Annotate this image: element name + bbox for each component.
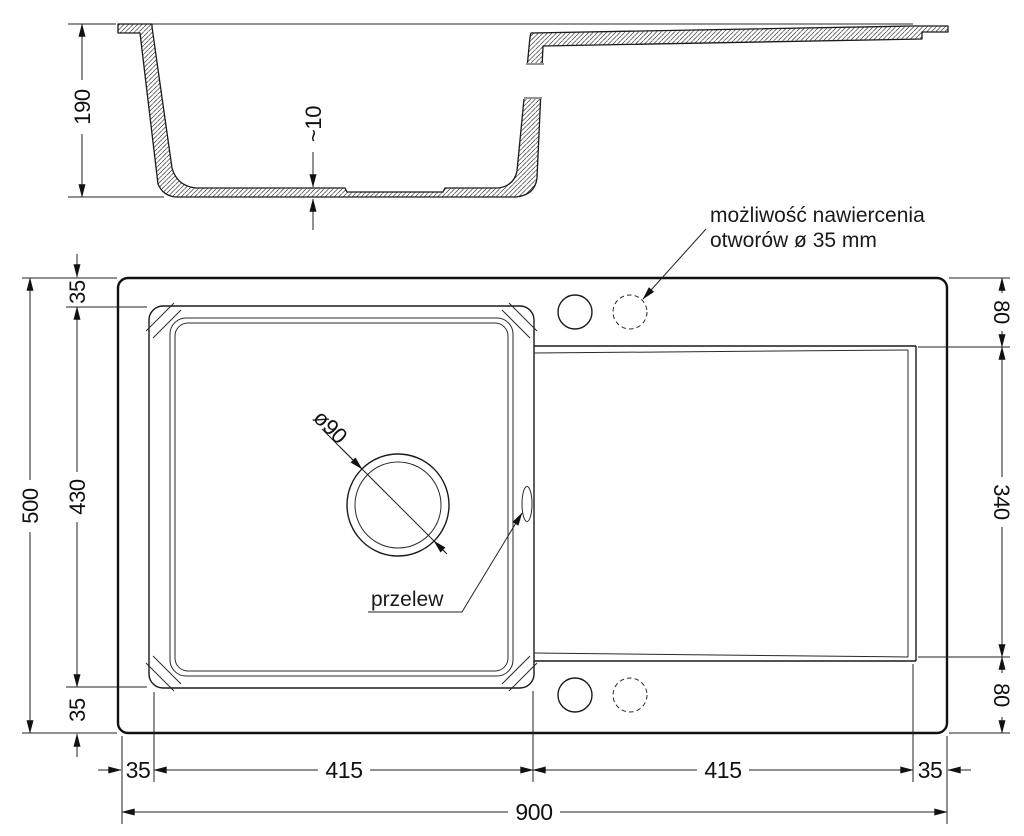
dim-overall-height-label: 500 <box>18 488 43 524</box>
faucet-hole-bottom <box>558 678 592 712</box>
bowl-rim-outer <box>149 306 534 688</box>
dim-drainboard-415-label: 415 <box>704 757 741 783</box>
dim-overall-width-label: 900 <box>515 799 552 825</box>
dim-right-80-top-label: 80 <box>989 300 1014 324</box>
side-section-view: 190 ~10 <box>68 24 948 230</box>
dim-bowl-415-label: 415 <box>325 757 362 783</box>
dim-overall-height: 500 <box>18 278 43 733</box>
drill-note-callout: możliwość nawiercenia otworów ø 35 mm <box>643 204 925 299</box>
bowl-rim-inner <box>170 318 513 676</box>
drill-note-line2: otworów ø 35 mm <box>710 229 877 252</box>
dim-depth-label: 190 <box>70 89 95 125</box>
dim-bowl-length-label: 430 <box>65 479 90 515</box>
bowl-corner-chamfers <box>146 303 537 691</box>
technical-drawing-page: 190 ~10 <box>0 0 1024 836</box>
faucet-hole-top <box>558 295 592 329</box>
dim-bottom-35-left-label: 35 <box>126 757 151 783</box>
dim-overall-width: 900 <box>122 799 947 825</box>
section-body-hatched <box>118 24 948 197</box>
dim-base-thickness: ~10 <box>301 106 326 230</box>
dim-bottom-35-right-label: 35 <box>918 757 943 783</box>
overflow-label: przelew <box>371 588 444 611</box>
bowl <box>146 303 537 691</box>
drainboard <box>534 346 916 661</box>
dim-right-chain: 80 340 80 <box>989 278 1014 733</box>
dim-drainboard-width-label: 340 <box>989 484 1014 520</box>
dim-left-chain: 35 430 35 <box>65 254 90 757</box>
dim-right-80-bottom-label: 80 <box>989 683 1014 707</box>
drain-diameter-label: ø90 <box>308 405 352 449</box>
dim-left-35-bottom-label: 35 <box>65 698 90 722</box>
sink-technical-drawing: 190 ~10 <box>0 0 1024 836</box>
optional-drill-hole-bottom <box>613 678 647 712</box>
drain: ø90 <box>308 405 449 556</box>
overflow-callout: przelew <box>368 487 532 613</box>
overflow-ellipse <box>522 487 532 522</box>
drill-note-line1: możliwość nawiercenia <box>710 204 925 227</box>
bowl-rim-inner2 <box>175 323 508 671</box>
dim-base-thickness-label: ~10 <box>301 106 326 142</box>
optional-drill-hole-top <box>613 295 647 329</box>
dim-bottom-chain: 35 415 415 35 <box>98 757 971 783</box>
overflow-gap <box>522 63 546 99</box>
plan-view: ø90 przelew możliwość nawiercenia otworó… <box>18 204 1014 825</box>
dim-left-35-top-label: 35 <box>65 280 90 304</box>
